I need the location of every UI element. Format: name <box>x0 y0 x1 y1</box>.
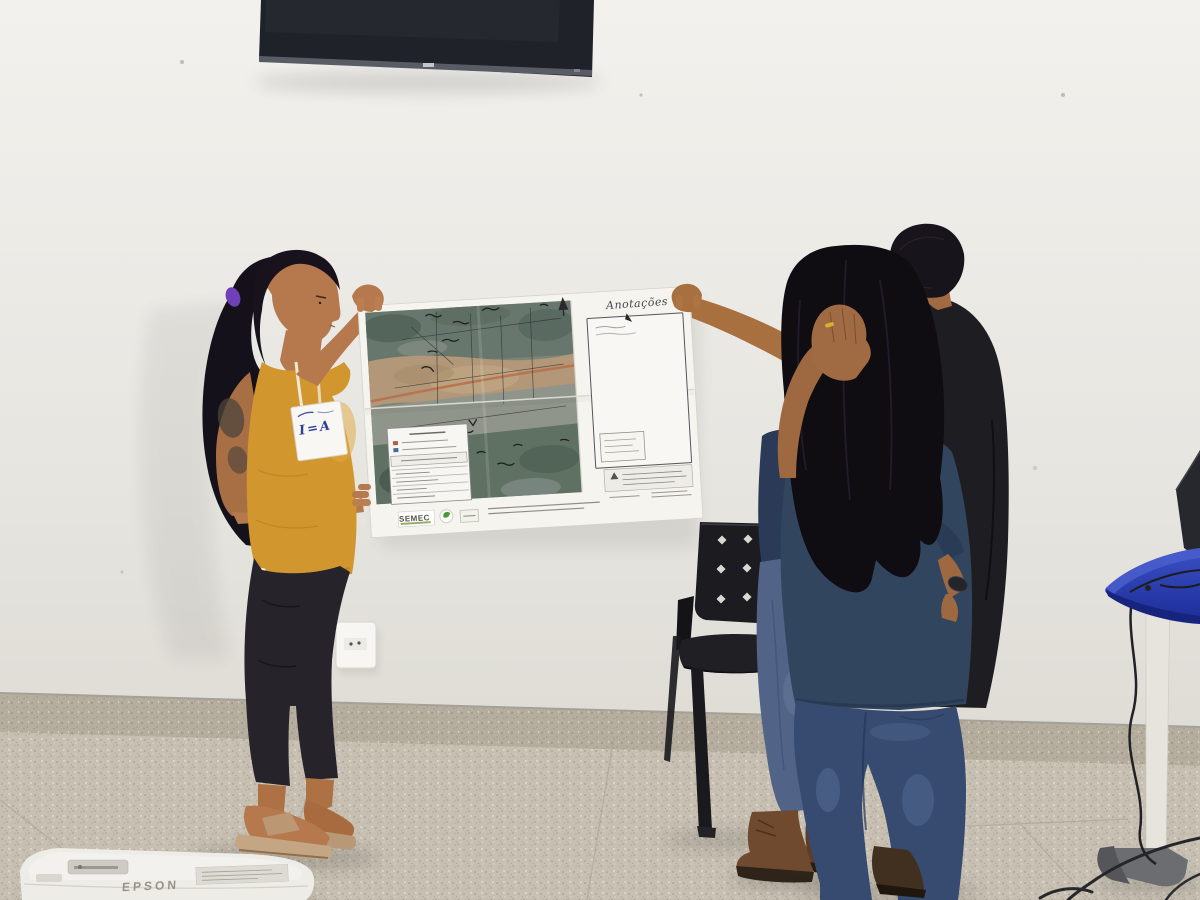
wall-outlet <box>336 622 379 674</box>
map-legend <box>387 424 471 505</box>
name-badge <box>291 401 348 461</box>
photo-scene <box>0 0 1200 900</box>
wall-mark <box>121 571 124 574</box>
wall-tv <box>253 0 603 93</box>
map-poster <box>358 286 703 537</box>
wall-mark <box>1061 93 1065 97</box>
table-leg <box>1146 596 1170 852</box>
long-hair <box>781 245 944 593</box>
tv-logo <box>423 63 434 67</box>
projector-label <box>196 864 289 884</box>
wall-mark <box>1033 466 1037 470</box>
wall-mark <box>180 60 184 64</box>
eye <box>319 302 321 304</box>
wall-mark <box>639 93 642 96</box>
